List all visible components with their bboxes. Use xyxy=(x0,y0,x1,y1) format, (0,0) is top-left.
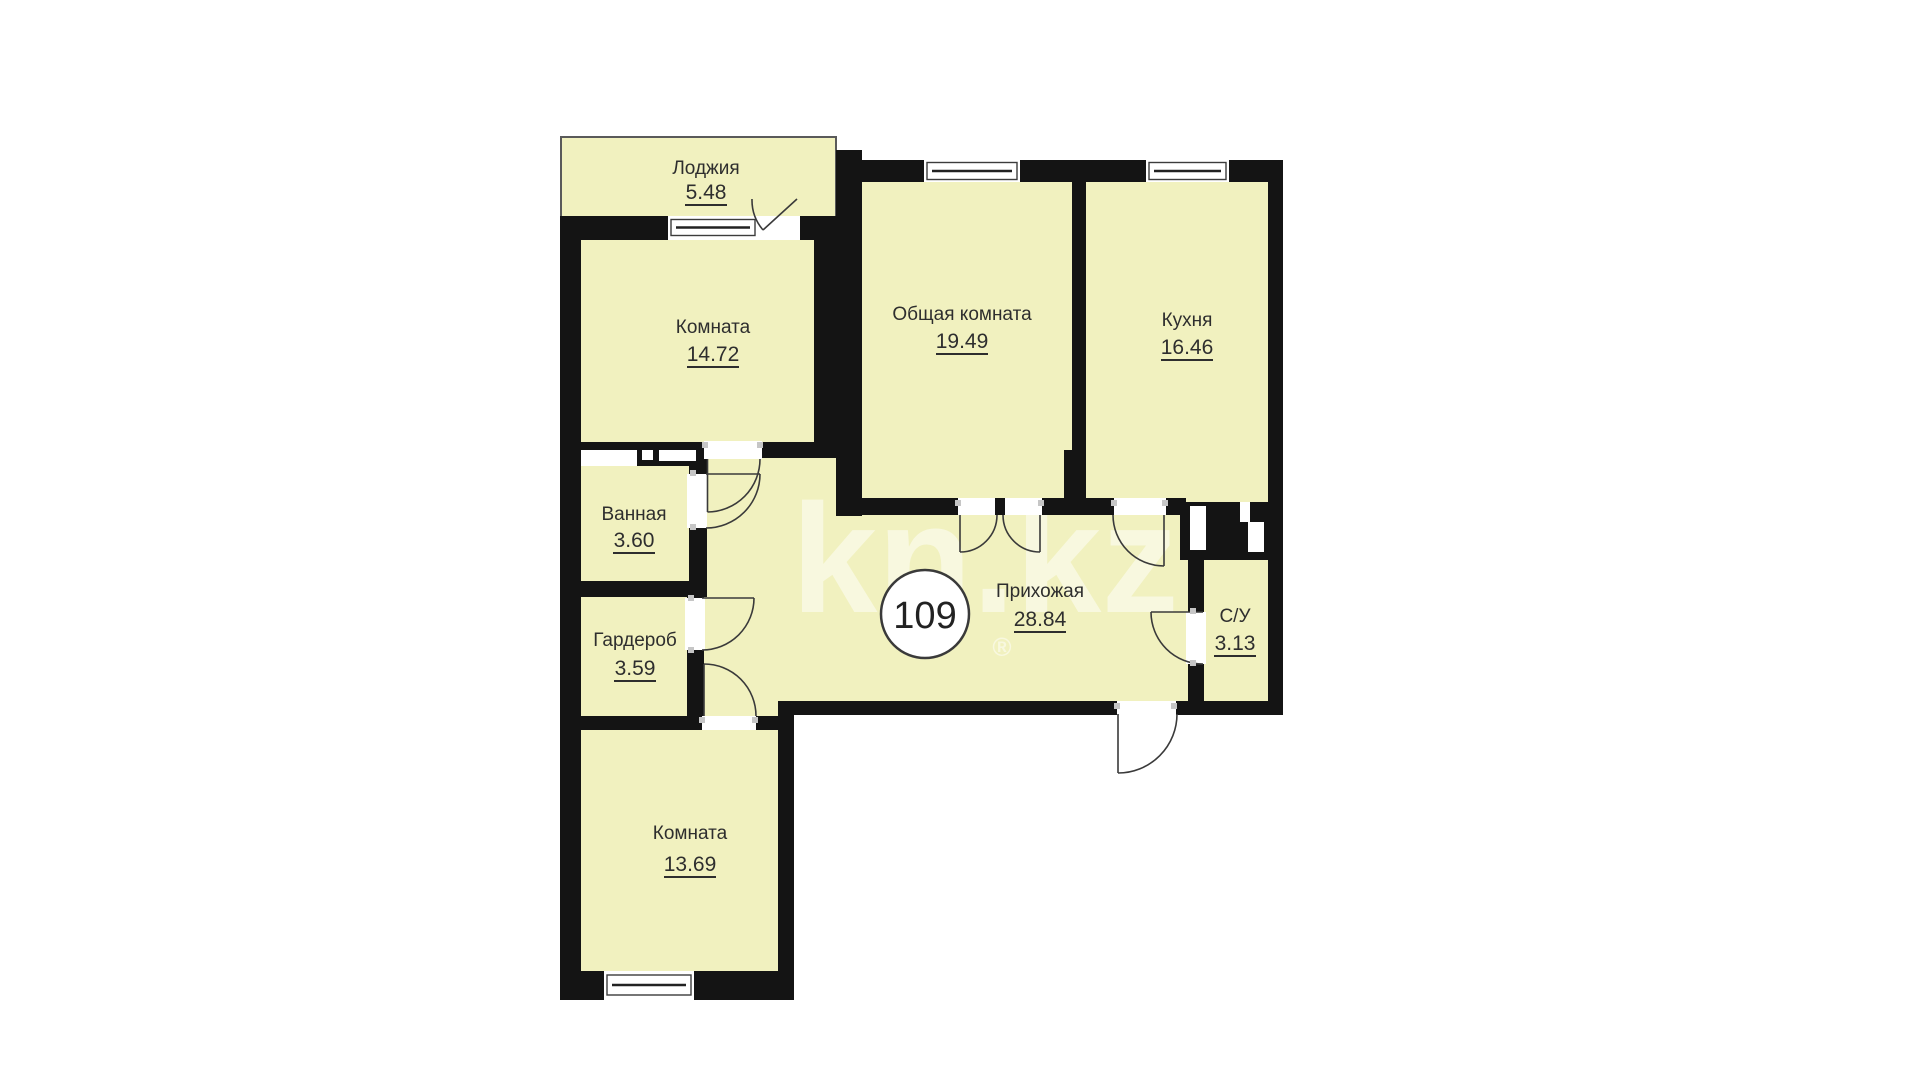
room-area: 3.60 xyxy=(614,529,655,552)
opening-wc-door xyxy=(1186,612,1206,664)
room-area: 3.13 xyxy=(1215,632,1256,655)
vent-cell xyxy=(1248,522,1264,552)
wall-room-top-bottom-thin xyxy=(581,442,637,450)
wall-door-stub xyxy=(762,442,814,458)
double-door-mullion xyxy=(995,498,1005,515)
floor-plan: kn.kz ® xyxy=(0,0,1920,1080)
room-label-wc: С/У 3.13 xyxy=(1214,606,1256,657)
room-name: Общая комната xyxy=(892,304,1032,325)
room-area: 3.59 xyxy=(615,657,656,680)
unit-number-badge: 109 xyxy=(881,570,969,658)
opening-entrance-door xyxy=(1117,701,1176,715)
opening-room-bottom-door xyxy=(702,716,756,730)
room-name: Ванная xyxy=(601,504,666,525)
wall-step-block xyxy=(836,150,862,516)
wall-hallway-bottom xyxy=(794,701,1283,715)
wall-outer-left xyxy=(560,216,581,1000)
floor-plan-page: kn.kz ® xyxy=(0,0,1920,1080)
wall-room-bottom-right xyxy=(778,701,794,1000)
room-name: Комната xyxy=(676,317,751,338)
opening-kitchen-door xyxy=(1114,498,1166,515)
room-area: 13.69 xyxy=(664,853,717,876)
opening-bathroom-door xyxy=(687,474,707,528)
wall-room-top-right xyxy=(814,240,836,458)
room-area: 16.46 xyxy=(1161,336,1214,359)
room-name: Гардероб xyxy=(593,630,677,651)
vent-cell xyxy=(1240,502,1250,522)
wall-kitchen-divider-step xyxy=(1064,450,1074,515)
room-name: Комната xyxy=(653,823,728,844)
opening-wardrobe-door xyxy=(685,598,705,650)
room-name: С/У xyxy=(1219,606,1251,627)
room-area: 14.72 xyxy=(687,343,740,366)
wall-kitchen-divider xyxy=(1072,182,1086,515)
room-area: 5.48 xyxy=(686,181,727,204)
vent-cell xyxy=(642,450,653,460)
room-label-kitchen: Кухня 16.46 xyxy=(1161,310,1214,361)
room-name: Лоджия xyxy=(672,158,739,179)
wall-outer-right xyxy=(1268,160,1283,715)
niche-bathroom-top xyxy=(581,450,637,466)
vent-cell xyxy=(1190,506,1206,550)
room-area: 19.49 xyxy=(936,330,989,353)
watermark-reg-icon: ® xyxy=(992,632,1011,662)
room-name: Кухня xyxy=(1162,310,1213,331)
opening-room-top-door xyxy=(704,441,762,459)
wall-bathroom-bottom xyxy=(560,581,707,597)
vent-cell xyxy=(659,450,696,461)
room-name: Прихожая xyxy=(996,581,1084,602)
room-area: 28.84 xyxy=(1014,608,1067,631)
unit-number: 109 xyxy=(893,595,956,637)
door-entrance xyxy=(1118,714,1177,773)
